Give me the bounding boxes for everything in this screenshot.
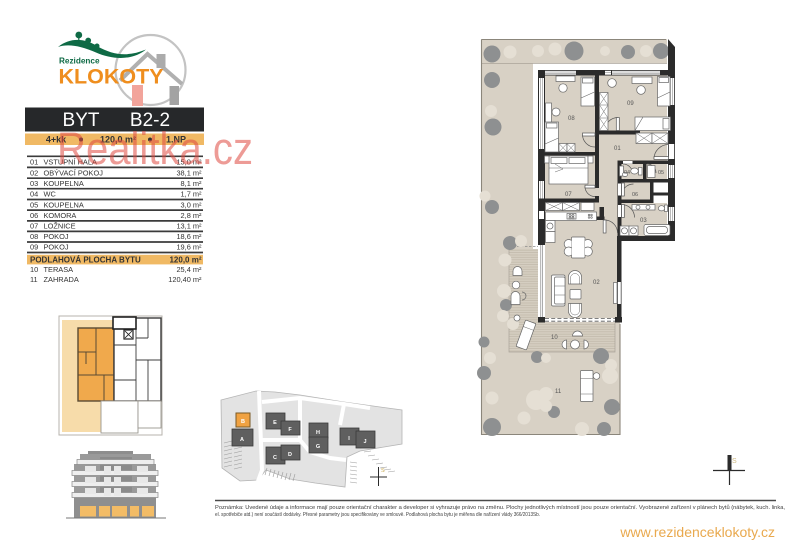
svg-text:07: 07 bbox=[30, 222, 38, 231]
svg-text:8,1 m²: 8,1 m² bbox=[181, 179, 202, 188]
svg-text:18,6 m²: 18,6 m² bbox=[176, 232, 202, 241]
svg-text:01: 01 bbox=[614, 146, 621, 152]
svg-text:04: 04 bbox=[624, 170, 630, 176]
svg-text:05: 05 bbox=[658, 170, 664, 176]
svg-text:06: 06 bbox=[30, 211, 38, 220]
svg-text:LOŽNICE: LOŽNICE bbox=[44, 222, 76, 231]
svg-text:3,0 m²: 3,0 m² bbox=[181, 200, 202, 209]
svg-text:TERASA: TERASA bbox=[44, 265, 74, 274]
svg-text:13,1 m²: 13,1 m² bbox=[176, 222, 202, 231]
svg-text:B: B bbox=[241, 419, 245, 425]
svg-text:J: J bbox=[363, 439, 366, 445]
svg-text:KOUPELNA: KOUPELNA bbox=[44, 179, 84, 188]
svg-text:2,8 m²: 2,8 m² bbox=[181, 211, 202, 220]
svg-text:PODLAHOVÁ PLOCHA BYTU: PODLAHOVÁ PLOCHA BYTU bbox=[30, 256, 141, 265]
svg-text:25,4 m²: 25,4 m² bbox=[176, 265, 202, 274]
svg-text:el. spotřebiče atd.) není souč: el. spotřebiče atd.) není součástí dodáv… bbox=[215, 512, 540, 518]
svg-text:C: C bbox=[273, 455, 277, 461]
svg-text:1,7 m²: 1,7 m² bbox=[181, 190, 202, 199]
svg-text:www.rezidenceklokoty.cz: www.rezidenceklokoty.cz bbox=[619, 524, 775, 540]
svg-text:02: 02 bbox=[30, 168, 38, 177]
svg-text:S: S bbox=[381, 468, 385, 474]
svg-text:A: A bbox=[240, 437, 244, 443]
svg-text:11: 11 bbox=[555, 389, 562, 395]
svg-text:120,40 m²: 120,40 m² bbox=[168, 275, 202, 284]
svg-text:E: E bbox=[273, 420, 277, 426]
svg-text:04: 04 bbox=[30, 190, 38, 199]
svg-text:KLOKOTY: KLOKOTY bbox=[59, 65, 164, 89]
svg-text:Realitka.cz: Realitka.cz bbox=[57, 123, 253, 174]
svg-text:03: 03 bbox=[30, 179, 38, 188]
svg-text:03: 03 bbox=[640, 218, 647, 224]
svg-text:10: 10 bbox=[30, 265, 38, 274]
svg-text:11: 11 bbox=[30, 275, 38, 284]
svg-text:POKOJ: POKOJ bbox=[44, 232, 69, 241]
svg-text:05: 05 bbox=[30, 200, 38, 209]
svg-text:POKOJ: POKOJ bbox=[44, 243, 69, 252]
svg-text:KOUPELNA: KOUPELNA bbox=[44, 200, 84, 209]
svg-text:WC: WC bbox=[44, 190, 57, 199]
svg-text:H: H bbox=[316, 430, 320, 436]
svg-text:S: S bbox=[732, 458, 737, 465]
svg-text:120,0 m²: 120,0 m² bbox=[169, 256, 201, 265]
svg-text:ZAHRADA: ZAHRADA bbox=[44, 275, 79, 284]
svg-text:08: 08 bbox=[568, 116, 575, 122]
svg-text:D: D bbox=[288, 452, 292, 458]
svg-text:09: 09 bbox=[627, 101, 634, 107]
svg-text:06: 06 bbox=[632, 192, 638, 198]
svg-text:10: 10 bbox=[551, 335, 558, 341]
svg-text:09: 09 bbox=[30, 243, 38, 252]
svg-text:02: 02 bbox=[593, 280, 600, 286]
svg-text:KOMORA: KOMORA bbox=[44, 211, 77, 220]
svg-text:19,6 m²: 19,6 m² bbox=[176, 243, 202, 252]
svg-text:08: 08 bbox=[30, 232, 38, 241]
svg-text:Poznámka: Uvedené údaje a info: Poznámka: Uvedené údaje a informace mají… bbox=[215, 504, 785, 511]
svg-text:07: 07 bbox=[565, 192, 572, 198]
svg-text:01: 01 bbox=[30, 158, 38, 167]
svg-text:G: G bbox=[316, 444, 320, 450]
